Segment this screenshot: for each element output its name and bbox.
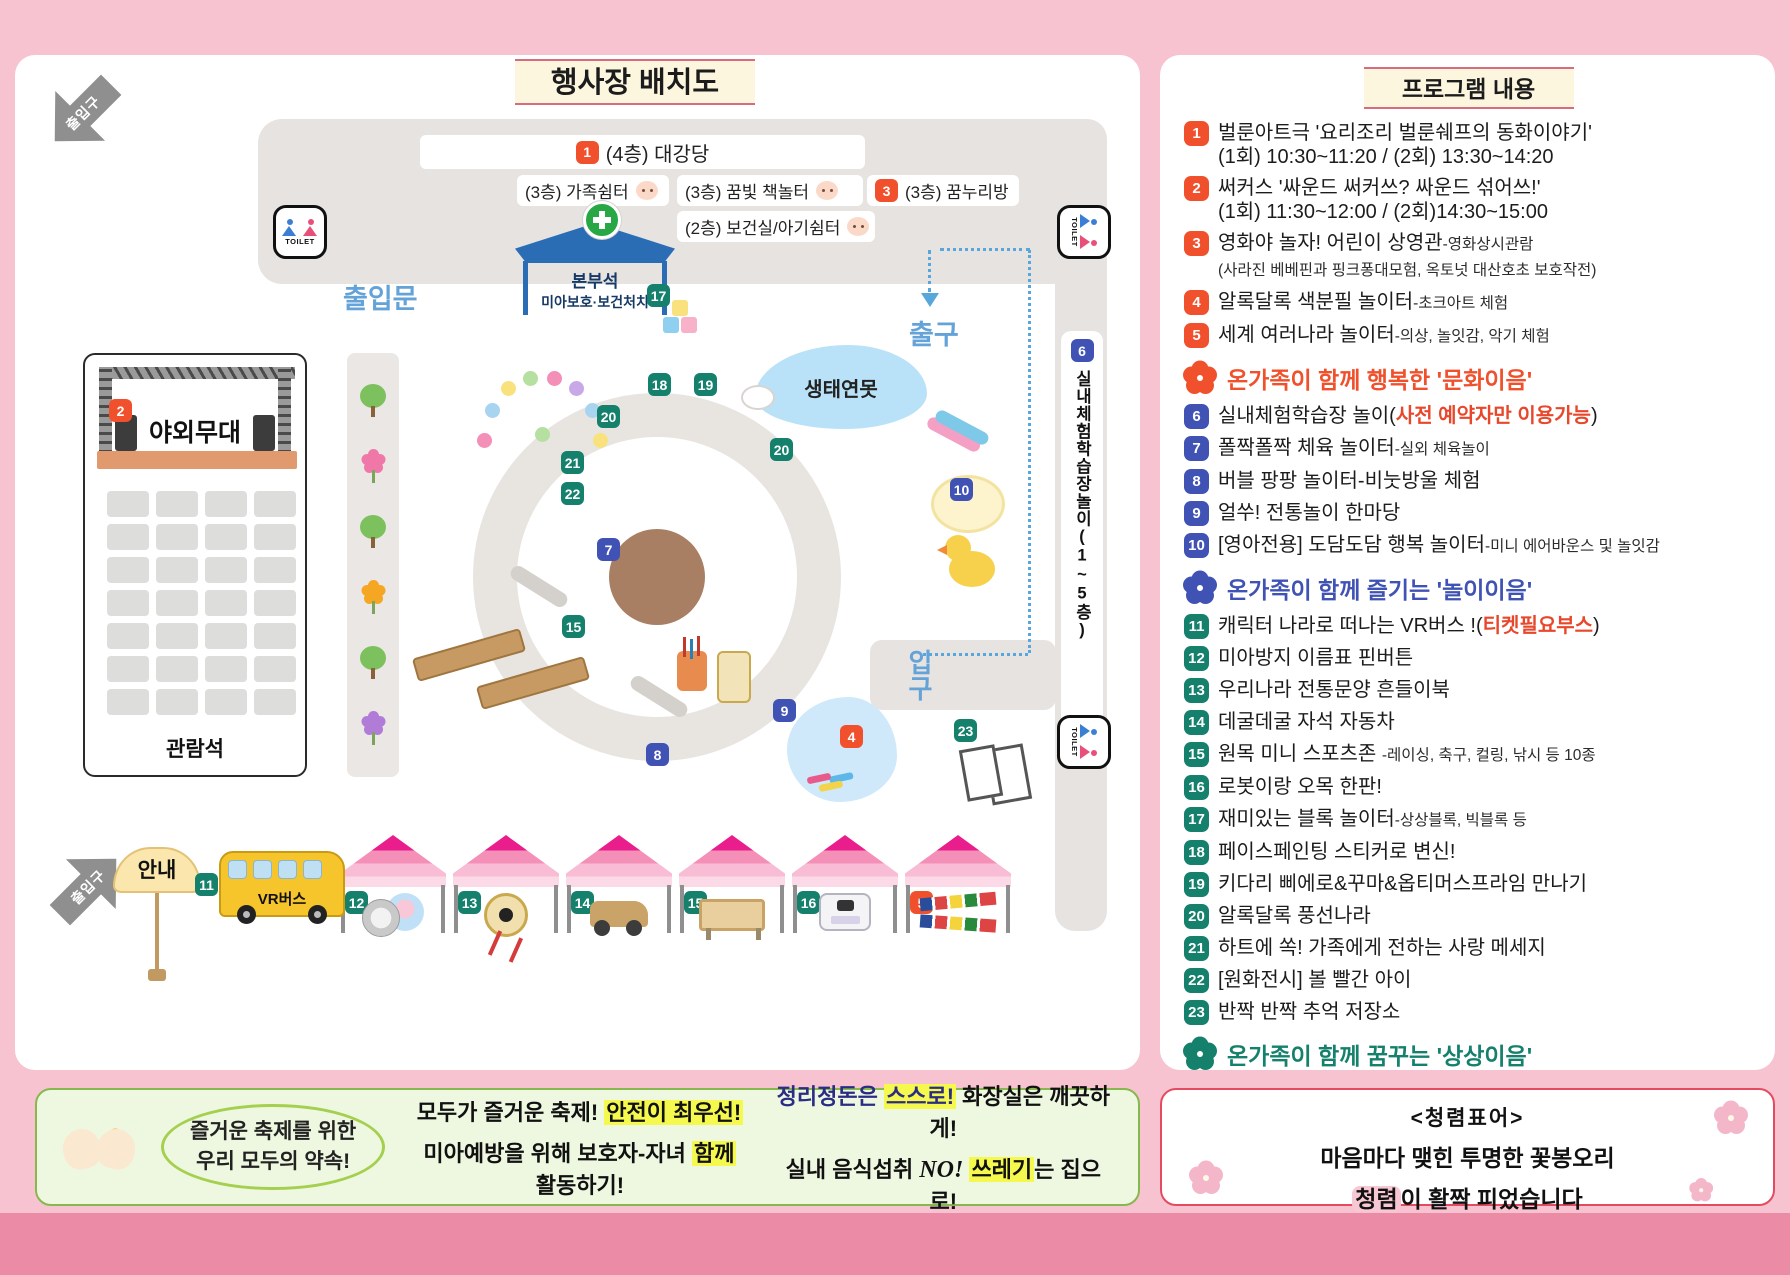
map-marker-22: 22 — [561, 482, 584, 505]
program-item-21: 21하트에 쏙! 가족에게 전하는 사랑 메세지 — [1184, 936, 1753, 961]
program-item-text: 페이스페인팅 스티커로 변신! — [1218, 840, 1455, 864]
button-icon — [362, 893, 424, 935]
visitor-path-dash — [1028, 250, 1031, 653]
toilet-label: TOILET — [285, 237, 315, 246]
program-section-1: 온가족이 함께 행복한 '문화이음' — [1184, 361, 1753, 395]
pinky-promise-icon — [63, 1121, 135, 1173]
seat — [156, 590, 198, 616]
program-item-text: 영화야 놀자! 어린이 상영관-영화상시관람(사라진 베베핀과 핑크퐁대모험, … — [1218, 231, 1596, 283]
program-item-18: 18페이스페인팅 스티커로 변신! — [1184, 840, 1753, 865]
baby-icon — [847, 217, 869, 236]
exit-label: 출구 — [909, 313, 959, 352]
program-item-number: 13 — [1184, 678, 1209, 703]
main-door-label: 출입문 — [343, 277, 418, 316]
pledge-line: 정리정돈은 스스로! 화장실은 깨끗하게! — [775, 1079, 1112, 1143]
venue-map-card: 출입구 행사장 배치도 1 (4층) 대강당 (3층) 가족쉼터 (3층) 꿈빛… — [15, 55, 1140, 1070]
toilet-label: TOILET — [1071, 217, 1080, 247]
program-item-20: 20알록달록 풍선나라 — [1184, 904, 1753, 929]
program-item-number: 6 — [1184, 404, 1209, 429]
vr-bus-icon: VR버스 — [219, 851, 345, 917]
tent-canopy — [679, 835, 785, 887]
balloon-arch-icon — [535, 427, 550, 442]
map-marker-23: 23 — [954, 719, 977, 742]
program-item-number: 10 — [1184, 533, 1209, 558]
room-book-play: (3층) 꿈빛 책놀터 — [677, 175, 863, 206]
photo-cards-icon — [959, 744, 1003, 801]
indoor-learning-strip: 6 실내체험학습장놀이(1~5층) — [1061, 331, 1103, 751]
tree-icon — [358, 515, 388, 549]
program-section-header: 온가족이 함께 꿈꾸는 '상상이음' — [1184, 1037, 1753, 1071]
program-item-number: 1 — [1184, 121, 1209, 146]
pledge-column-safety: 모두가 즐거운 축제! 안전이 최우선! 미아예방을 위해 보호자-자녀 함께 … — [411, 1086, 748, 1209]
program-item-4: 4알록달록 색분필 놀이터-초크아트 체험 — [1184, 290, 1753, 316]
program-item-23: 23반짝 반짝 추억 저장소 — [1184, 1000, 1753, 1025]
program-item-number: 9 — [1184, 501, 1209, 526]
marker-11: 11 — [195, 873, 218, 896]
visitor-path-dash — [940, 248, 1030, 251]
flower-icon — [358, 450, 388, 484]
program-item-14: 14데굴데굴 자석 자동차 — [1184, 710, 1753, 735]
flower-icon — [358, 581, 388, 615]
program-item-text: 버블 팡팡 놀이터-비눗방울 체험 — [1218, 469, 1481, 493]
seat — [107, 689, 149, 715]
stage-truss — [99, 367, 295, 379]
booth-tent-5: 5 — [905, 835, 1011, 985]
vr-bus-label: VR버스 — [221, 888, 343, 909]
tree-icon — [358, 646, 388, 680]
program-item-11: 11캐릭터 나라로 떠나는 VR버스 !(티켓필요부스) — [1184, 614, 1753, 639]
program-item-number: 4 — [1184, 290, 1209, 315]
pledge-circle-line2: 우리 모두의 약속! — [190, 1147, 356, 1177]
program-item-13: 13우리나라 전통문양 흔들이북 — [1184, 678, 1753, 703]
toilet-icon: TOILET — [1057, 715, 1111, 769]
seat — [107, 590, 149, 616]
seat — [156, 656, 198, 682]
pledge-circle-line1: 즐거운 축제를 위한 — [190, 1117, 356, 1147]
integrity-title: <청렴표어> — [1162, 1102, 1773, 1132]
program-item-text: 원목 미니 스포츠존 -레이싱, 축구, 컬링, 낚시 등 10종 — [1218, 742, 1596, 768]
robot-icon — [819, 893, 871, 931]
room-family-rest-label: (3층) 가족쉼터 — [525, 178, 629, 203]
map-marker-4: 4 — [840, 725, 863, 748]
program-item-number: 15 — [1184, 742, 1209, 767]
pledge-line: 미아예방을 위해 보호자-자녀 함께 활동하기! — [411, 1136, 748, 1200]
program-item-text: 세계 여러나라 놀이터-의상, 놀잇감, 악기 체험 — [1218, 323, 1550, 349]
marker-3: 3 — [875, 179, 898, 202]
program-item-text: 하트에 쏙! 가족에게 전하는 사랑 메세지 — [1218, 936, 1546, 960]
hq-post — [523, 261, 528, 315]
indoor-learning-label: 실내체험학습장놀이(1~5층) — [1070, 370, 1094, 640]
map-title: 행사장 배치도 — [515, 59, 755, 105]
seat — [205, 689, 247, 715]
room-dream-room: 3 (3층) 꿈누리방 — [867, 175, 1019, 206]
program-item-16: 16로봇이랑 오목 한판! — [1184, 775, 1753, 800]
flower-icon — [1184, 362, 1216, 394]
map-marker-18: 18 — [648, 373, 671, 396]
booth-tent-16: 16 — [792, 835, 898, 985]
program-item-text: 알록달록 색분필 놀이터-초크아트 체험 — [1218, 290, 1508, 316]
program-item-text: 로봇이랑 오목 한판! — [1218, 775, 1382, 799]
program-title: 프로그램 내용 — [1364, 67, 1574, 109]
program-item-22: 22[원화전시] 볼 빨간 아이 — [1184, 968, 1753, 993]
program-item-number: 11 — [1184, 614, 1209, 639]
map-marker-9: 9 — [773, 699, 796, 722]
map-marker-17: 17 — [647, 284, 670, 307]
eco-pond: 생태연못 — [755, 345, 927, 429]
flags-icon — [920, 893, 996, 937]
flower-doodle-icon — [1715, 1102, 1747, 1134]
seat — [107, 524, 149, 550]
room-main-hall: 1 (4층) 대강당 — [420, 135, 865, 169]
car-icon — [590, 901, 648, 927]
entrance-arrow-top: 출입구 — [43, 73, 123, 153]
flower-icon — [1184, 572, 1216, 604]
tent-canopy — [792, 835, 898, 887]
map-marker-13: 13 — [458, 891, 481, 914]
program-item-19: 19키다리 삐에로&꾸마&옵티머스프라임 만나기 — [1184, 872, 1753, 897]
seat — [107, 491, 149, 517]
seat — [156, 623, 198, 649]
marker-1: 1 — [576, 141, 599, 164]
tent-canopy — [340, 835, 446, 887]
seat — [107, 557, 149, 583]
outdoor-stage-area: 2 야외무대 관람석 — [83, 353, 307, 777]
program-item-number: 14 — [1184, 710, 1209, 735]
program-item-number: 5 — [1184, 323, 1209, 348]
program-item-text: [영아전용] 도담도담 행복 놀이터-미니 에어바운스 및 놀잇감 — [1218, 533, 1660, 559]
toilet-icon: TOILET — [1057, 205, 1111, 259]
seat — [205, 623, 247, 649]
park-center-plaza — [609, 529, 705, 625]
program-item-text: 재미있는 블록 놀이터-상상블록, 빅블록 등 — [1218, 807, 1527, 833]
program-item-3: 3영화야 놀자! 어린이 상영관-영화상시관람(사라진 베베핀과 핑크퐁대모험,… — [1184, 231, 1753, 283]
program-section-2: 온가족이 함께 즐기는 '놀이이음' — [1184, 571, 1753, 605]
marker-6: 6 — [1071, 339, 1094, 362]
program-section-title: 온가족이 함께 행복한 '문화이음' — [1227, 361, 1532, 395]
tree-icon — [358, 384, 388, 418]
audience-seats — [107, 491, 296, 715]
flower-icon — [1184, 1038, 1216, 1070]
event-poster: 출입구 행사장 배치도 1 (4층) 대강당 (3층) 가족쉼터 (3층) 꿈빛… — [0, 0, 1790, 1275]
room-clinic: (2층) 보건실/아기쉼터 — [677, 211, 875, 242]
program-item-15: 15원목 미니 스포츠존 -레이싱, 축구, 컬링, 낚시 등 10종 — [1184, 742, 1753, 768]
program-item-text: [원화전시] 볼 빨간 아이 — [1218, 968, 1411, 992]
pledge-line: 실내 음식섭취 NO! 쓰레기는 집으로! — [775, 1152, 1112, 1216]
program-item-12: 12미아방지 이름표 핀버튼 — [1184, 646, 1753, 671]
program-item-9: 9얼쑤! 전통놀이 한마당 — [1184, 501, 1753, 526]
game-board-icon — [717, 651, 751, 703]
program-section-header: 온가족이 함께 즐기는 '놀이이음' — [1184, 571, 1753, 605]
integrity-line1: 마음마다 맺힌 투명한 꽃봉오리 — [1162, 1139, 1773, 1173]
flower-icon — [358, 712, 388, 746]
booth-tent-12: 12 — [340, 835, 446, 985]
program-item-number: 7 — [1184, 436, 1209, 461]
program-item-text: 미아방지 이름표 핀버튼 — [1218, 646, 1413, 670]
program-item-number: 12 — [1184, 646, 1209, 671]
map-marker-7: 7 — [597, 538, 620, 561]
arrow-game-icon — [677, 651, 707, 691]
program-panel: 프로그램 내용 1벌룬아트극 '요리조리 벌룬쉐프의 동화이야기'(1회) 10… — [1160, 55, 1775, 1070]
flower-doodle-icon — [1190, 1162, 1222, 1194]
map-marker-10: 10 — [950, 478, 973, 501]
program-item-number: 3 — [1184, 231, 1209, 256]
seat — [205, 557, 247, 583]
drum-icon — [484, 893, 528, 937]
map-marker-15: 15 — [562, 615, 585, 638]
bubble-zone-icon — [787, 697, 897, 802]
umbrella-pole — [155, 893, 159, 971]
enter-label: 입구 — [901, 649, 938, 701]
booth-tent-14: 14 — [566, 835, 672, 985]
sheep-icon — [741, 385, 775, 410]
stage-floor — [97, 451, 297, 469]
pledge-column-clean: 정리정돈은 스스로! 화장실은 깨끗하게! 실내 음식섭취 NO! 쓰레기는 집… — [775, 1070, 1112, 1225]
info-umbrella: 안내 — [113, 847, 201, 987]
program-section-title: 온가족이 함께 즐기는 '놀이이음' — [1227, 571, 1532, 605]
seat — [254, 491, 296, 517]
program-item-1: 1벌룬아트극 '요리조리 벌룬쉐프의 동화이야기'(1회) 10:30~11:2… — [1184, 121, 1753, 169]
program-section-3: 온가족이 함께 꿈꾸는 '상상이음' — [1184, 1037, 1753, 1071]
air-bounce-slide-icon — [933, 408, 990, 447]
program-item-number: 2 — [1184, 176, 1209, 201]
program-item-number: 21 — [1184, 936, 1209, 961]
stage-label: 야외무대 — [85, 413, 305, 449]
map-marker-20: 20 — [770, 438, 793, 461]
exit-arrow-head — [921, 293, 939, 307]
program-item-2: 2써커스 '싸운드 써커쓰? 싸운드 섞어쓰!'(1회) 11:30~12:00… — [1184, 176, 1753, 224]
room-main-hall-label: (4층) 대강당 — [606, 138, 710, 167]
seat — [107, 623, 149, 649]
seat — [156, 689, 198, 715]
garden-strip — [347, 353, 399, 777]
toilet-label: TOILET — [1071, 727, 1080, 757]
program-item-number: 18 — [1184, 840, 1209, 865]
seat — [107, 656, 149, 682]
program-item-10: 10[영아전용] 도담도담 행복 놀이터-미니 에어바운스 및 놀잇감 — [1184, 533, 1753, 559]
info-label: 안내 — [113, 847, 201, 893]
integrity-slogan-box: <청렴표어> 마음마다 맺힌 투명한 꽃봉오리 청렴이 활짝 피었습니다 — [1160, 1088, 1775, 1206]
festival-pledge-box: 즐거운 축제를 위한 우리 모두의 약속! 모두가 즐거운 축제! 안전이 최우… — [35, 1088, 1140, 1206]
room-clinic-label: (2층) 보건실/아기쉼터 — [685, 214, 840, 239]
seat — [156, 557, 198, 583]
program-item-number: 16 — [1184, 775, 1209, 800]
program-item-text: 우리나라 전통문양 흔들이북 — [1218, 678, 1450, 702]
program-item-7: 7폴짝폴짝 체육 놀이터-실외 체육놀이 — [1184, 436, 1753, 462]
booth-tent-13: 13 — [453, 835, 559, 985]
program-item-number: 23 — [1184, 1000, 1209, 1025]
program-item-text: 키다리 삐에로&꾸마&옵티머스프라임 만나기 — [1218, 872, 1587, 896]
program-item-text: 알록달록 풍선나라 — [1218, 904, 1371, 928]
program-item-5: 5세계 여러나라 놀이터-의상, 놀잇감, 악기 체험 — [1184, 323, 1753, 349]
tent-canopy — [905, 835, 1011, 887]
program-item-text: 반짝 반짝 추억 저장소 — [1218, 1000, 1400, 1024]
program-item-text: 캐릭터 나라로 떠나는 VR버스 !(티켓필요부스) — [1218, 614, 1600, 638]
toy-blocks-icon — [663, 317, 679, 333]
room-dream-room-label: (3층) 꿈누리방 — [905, 178, 1009, 203]
program-item-8: 8버블 팡팡 놀이터-비눗방울 체험 — [1184, 469, 1753, 494]
program-item-17: 17재미있는 블록 놀이터-상상블록, 빅블록 등 — [1184, 807, 1753, 833]
umbrella-base — [148, 969, 166, 981]
baby-icon — [816, 181, 838, 200]
program-item-number: 22 — [1184, 968, 1209, 993]
seat — [205, 524, 247, 550]
visitor-path-dash — [923, 653, 1028, 656]
program-item-text: 폴짝폴짝 체육 놀이터-실외 체육놀이 — [1218, 436, 1490, 462]
map-marker-16: 16 — [797, 891, 820, 914]
program-item-text: 벌룬아트극 '요리조리 벌룬쉐프의 동화이야기'(1회) 10:30~11:20… — [1218, 121, 1592, 169]
tent-canopy — [566, 835, 672, 887]
integrity-line2: 청렴이 활짝 피었습니다 — [1162, 1180, 1773, 1214]
seat — [205, 656, 247, 682]
seat — [205, 590, 247, 616]
map-marker-19: 19 — [694, 373, 717, 396]
program-item-number: 8 — [1184, 469, 1209, 494]
baby-icon — [636, 181, 658, 200]
pledge-line: 모두가 즐거운 축제! 안전이 최우선! — [411, 1095, 748, 1127]
seat — [254, 524, 296, 550]
seat — [156, 524, 198, 550]
program-section-header: 온가족이 함께 행복한 '문화이음' — [1184, 361, 1753, 395]
seat — [254, 656, 296, 682]
seat — [205, 491, 247, 517]
program-item-number: 19 — [1184, 872, 1209, 897]
toilet-icon: TOILET — [273, 205, 327, 259]
seat — [254, 623, 296, 649]
program-item-number: 20 — [1184, 904, 1209, 929]
program-item-text: 데굴데굴 자석 자동차 — [1218, 710, 1395, 734]
seat — [254, 557, 296, 583]
tent-canopy — [453, 835, 559, 887]
sand-icon — [699, 899, 765, 931]
booth-tent-15: 15 — [679, 835, 785, 985]
seats-label: 관람석 — [85, 733, 305, 763]
duck-toy-icon — [949, 551, 995, 587]
map-marker-8: 8 — [646, 743, 669, 766]
seat — [254, 689, 296, 715]
program-item-text: 얼쑤! 전통놀이 한마당 — [1218, 501, 1400, 525]
program-item-text: 실내체험학습장 놀이(사전 예약자만 이용가능) — [1218, 404, 1598, 428]
map-marker-20: 20 — [597, 405, 620, 428]
flower-doodle-icon — [1690, 1179, 1704, 1193]
seat — [156, 491, 198, 517]
pledge-circle: 즐거운 축제를 위한 우리 모두의 약속! — [161, 1104, 385, 1191]
seat — [254, 590, 296, 616]
visitor-path-dash — [928, 250, 931, 292]
medical-cross-icon — [583, 201, 621, 239]
program-item-text: 써커스 '싸운드 써커쓰? 싸운드 섞어쓰!'(1회) 11:30~12:00 … — [1218, 176, 1548, 224]
map-marker-21: 21 — [561, 451, 584, 474]
program-item-number: 17 — [1184, 807, 1209, 832]
program-item-6: 6실내체험학습장 놀이(사전 예약자만 이용가능) — [1184, 404, 1753, 429]
program-section-title: 온가족이 함께 꿈꾸는 '상상이음' — [1227, 1037, 1532, 1071]
room-family-rest: (3층) 가족쉼터 — [517, 175, 669, 206]
room-book-play-label: (3층) 꿈빛 책놀터 — [685, 178, 809, 203]
